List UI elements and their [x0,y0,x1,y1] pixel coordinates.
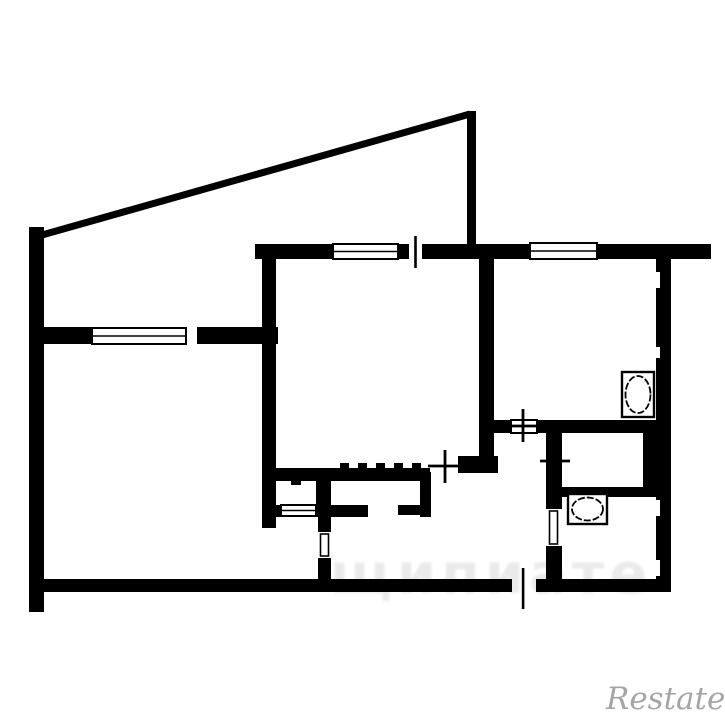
closet-divider-wall [316,468,331,517]
closet2-right-wall [420,472,431,517]
wardrobe-tick [394,463,403,468]
wardrobe-tick [340,463,349,468]
wall-notch [656,272,660,288]
wardrobe-tick [320,481,331,485]
restate-watermark: Restate [606,681,725,717]
bigroom-left-wall [262,259,276,528]
wall-notch [656,347,660,358]
top-main-wall [255,244,711,259]
bath-door-leaf [550,511,558,544]
wardrobe-tick [376,463,385,468]
left-outer-wall [29,227,44,612]
floorplan-svg [0,0,725,725]
bigroom-bottom-wall-b [458,456,498,473]
kitchen-stove [622,372,654,417]
kitchen-left-wall [479,259,494,458]
wc-right-filler-wall [643,433,656,487]
wardrobe-tick [358,463,367,468]
balcony-parapet-wall [467,111,476,251]
floorplan-canvas: щипиате Restate [0,0,725,725]
bath-sink [568,494,607,524]
bigroom-bottom-wall-a [276,468,430,481]
leftroom-door-leaf [321,534,329,556]
leftroom-balcony-opening [187,326,197,346]
wall-notch [656,500,660,516]
faint-watermark: щипиате [330,542,690,607]
wardrobe-tick [412,463,421,468]
closet2-bottom-left [331,505,368,517]
balcony-door-tick [414,236,417,268]
balcony-diagonal-wall [42,114,470,235]
wardrobe-tick [291,481,301,485]
